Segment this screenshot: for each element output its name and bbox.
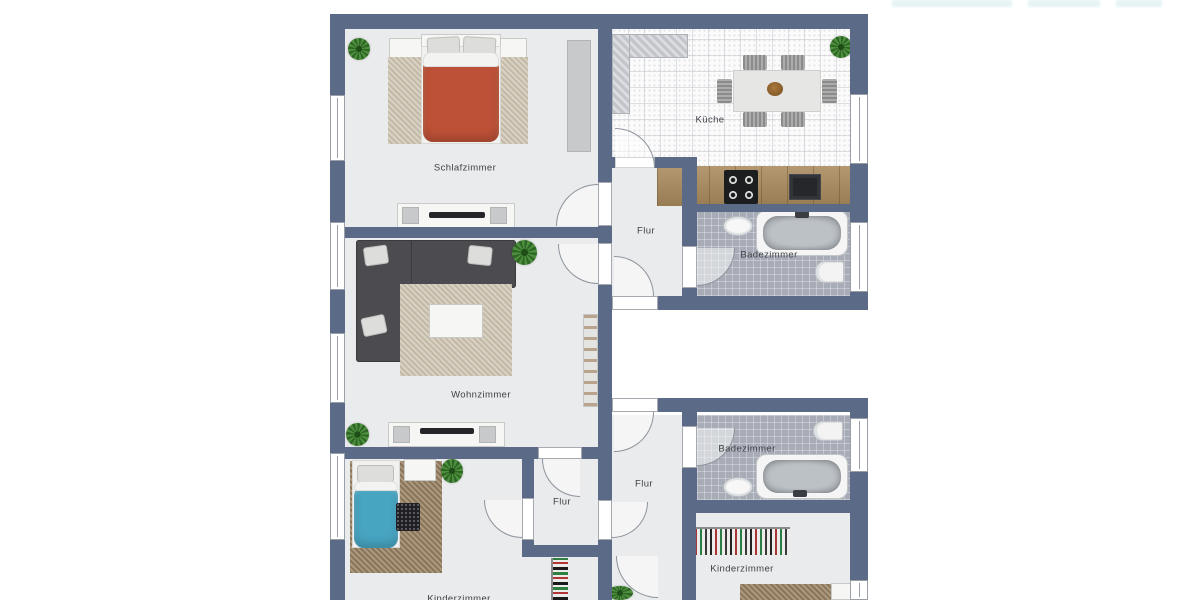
- room-label-badezimmer-lower: Badezimmer: [718, 444, 775, 455]
- faucet: [793, 490, 807, 497]
- kitchen-sink: [789, 174, 821, 200]
- bathtub-inner: [763, 460, 841, 493]
- watermark: [892, 0, 1012, 7]
- chair: [743, 112, 767, 127]
- wall: [682, 500, 868, 513]
- plant: [346, 423, 369, 446]
- plant: [348, 38, 370, 60]
- bathroom-sink: [723, 477, 753, 497]
- pillow: [357, 465, 394, 482]
- wall: [522, 545, 612, 557]
- room-label-schlafzimmer: Schlafzimmer: [434, 163, 496, 174]
- stove: [724, 170, 758, 204]
- floor-plan: SchlafzimmerKücheFlurBadezimmerWohnzimme…: [0, 0, 1200, 600]
- door-opening: [612, 296, 658, 310]
- room-label-wohnzimmer: Wohnzimmer: [451, 390, 511, 401]
- door-opening: [538, 447, 582, 459]
- plant: [512, 240, 537, 265]
- chair: [822, 79, 837, 103]
- window: [850, 222, 868, 292]
- door-opening: [598, 500, 612, 540]
- clothes-rack: [551, 558, 568, 600]
- plant: [441, 459, 463, 483]
- rug: [740, 584, 833, 600]
- room-label-flur-upper: Flur: [637, 226, 655, 237]
- sideboard-speaker: [393, 426, 410, 443]
- wardrobe: [567, 40, 591, 152]
- duvet-single-bed: [354, 486, 398, 548]
- room-label-kinderzimmer: Kinderzimmer: [710, 564, 773, 575]
- dark-mat: [396, 503, 420, 531]
- watermark: [1116, 0, 1162, 7]
- chair: [743, 55, 767, 70]
- desk: [404, 459, 436, 481]
- watermark: [1028, 0, 1100, 7]
- window: [850, 94, 868, 164]
- shelf: [583, 314, 598, 407]
- pillow: [363, 244, 389, 266]
- window: [850, 580, 868, 600]
- chair: [781, 112, 805, 127]
- window: [330, 222, 345, 290]
- wardrobe-clothes: [690, 527, 790, 555]
- duvet-fold: [354, 481, 398, 491]
- bathroom-sink: [723, 216, 753, 236]
- door-opening: [598, 182, 612, 226]
- fruit-bowl: [767, 82, 783, 96]
- duvet-fold: [423, 52, 499, 67]
- toilet: [815, 261, 844, 283]
- door-opening: [522, 498, 534, 540]
- wall: [682, 513, 696, 600]
- bathtub-inner: [763, 216, 841, 250]
- window: [330, 95, 345, 161]
- door-opening: [598, 243, 612, 285]
- wall: [345, 227, 598, 238]
- tv: [420, 428, 474, 434]
- plant: [830, 36, 852, 58]
- kitchen-counter-left: [612, 34, 630, 114]
- tv: [429, 212, 485, 218]
- sideboard-speaker: [402, 207, 419, 224]
- duvet-double-bed: [423, 58, 499, 142]
- window: [330, 453, 345, 540]
- window: [850, 418, 868, 472]
- door-opening: [682, 426, 697, 468]
- room-label-kueche: Küche: [696, 115, 725, 126]
- window: [330, 333, 345, 403]
- coffee-table: [429, 304, 483, 338]
- wall: [682, 204, 850, 212]
- door-opening: [612, 398, 658, 412]
- room-label-kinderzimmer-2: Kinderzimmer: [427, 594, 490, 600]
- chair: [781, 55, 805, 70]
- faucet: [795, 211, 809, 218]
- nightstand: [497, 38, 527, 58]
- room-label-badezimmer-upper: Badezimmer: [740, 250, 797, 261]
- sideboard-speaker: [479, 426, 496, 443]
- door-opening: [682, 246, 697, 288]
- chair: [717, 79, 732, 103]
- nightstand: [389, 38, 422, 58]
- pillow: [467, 245, 493, 266]
- sideboard-speaker: [490, 207, 507, 224]
- room-label-flur-lower: Flur: [635, 479, 653, 490]
- room-label-flur-vestibule: Flur: [553, 497, 571, 508]
- toilet: [813, 421, 843, 441]
